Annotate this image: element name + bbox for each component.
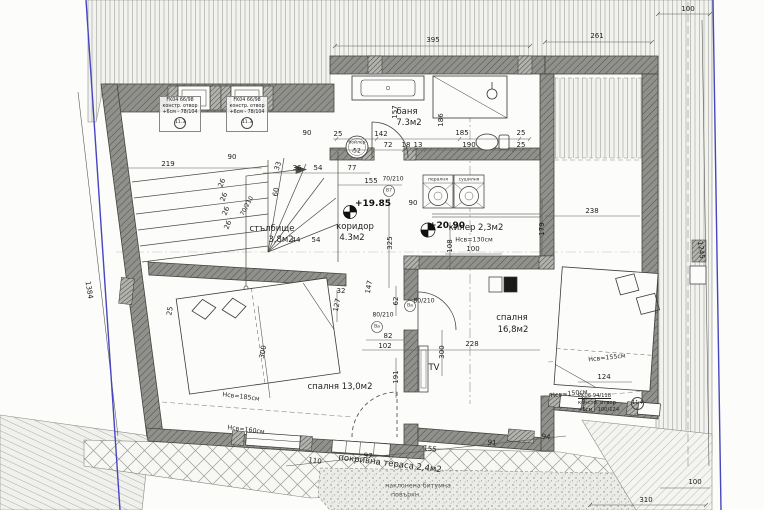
window-tag-size: +6см - 78/104 bbox=[161, 110, 199, 116]
window-tag-size: +6см - 78/104 bbox=[228, 110, 266, 116]
floor-plan-canvas: 3952611001245138421990902514218525721813… bbox=[0, 0, 764, 510]
bed-right bbox=[554, 267, 662, 392]
window-tag: PK06 94/118 констр. отвор +6см - 100/124… bbox=[578, 393, 640, 413]
window-tag-model: PK06 94/118 bbox=[578, 393, 640, 400]
toilet-tank bbox=[499, 135, 509, 149]
floor-plan-drawing bbox=[0, 0, 764, 510]
window-tag-mark: 11.3 bbox=[241, 117, 253, 129]
panel-box-filled bbox=[504, 277, 517, 292]
panel-box bbox=[489, 277, 502, 292]
window-tag-size: +6см - 100/124 bbox=[578, 407, 640, 414]
window-tag-mark: 11.4 bbox=[631, 397, 644, 410]
window-tag: FK04 66/98 констр. отвор +6см - 78/104 1… bbox=[159, 96, 201, 132]
bed-left bbox=[176, 278, 340, 394]
sink-counter bbox=[352, 76, 424, 100]
window-tag: FK04 66/98 констр. отвор +6см - 78/104 1… bbox=[226, 96, 268, 132]
tv-unit bbox=[419, 346, 428, 392]
window-tag-mark: 11.3 bbox=[174, 117, 186, 129]
toilet bbox=[476, 134, 498, 150]
